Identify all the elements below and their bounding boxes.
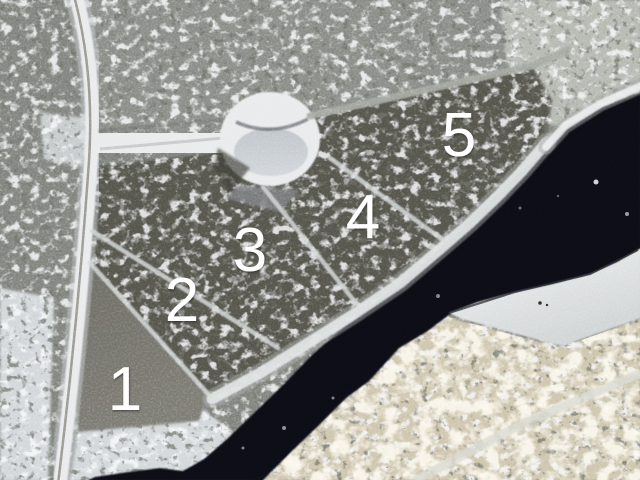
aerial-lot-photo: 1 2 3 4 5 xyxy=(0,0,640,480)
lot-number-label-2: 2 xyxy=(165,266,199,335)
lot-number-label-4: 4 xyxy=(346,183,380,252)
lot-number-label-3: 3 xyxy=(233,216,267,285)
photo-grain xyxy=(0,0,640,480)
lot-number-label-1: 1 xyxy=(108,355,142,424)
lot-number-label-5: 5 xyxy=(442,101,476,170)
aerial-photo-canvas: 1 2 3 4 5 xyxy=(0,0,640,480)
